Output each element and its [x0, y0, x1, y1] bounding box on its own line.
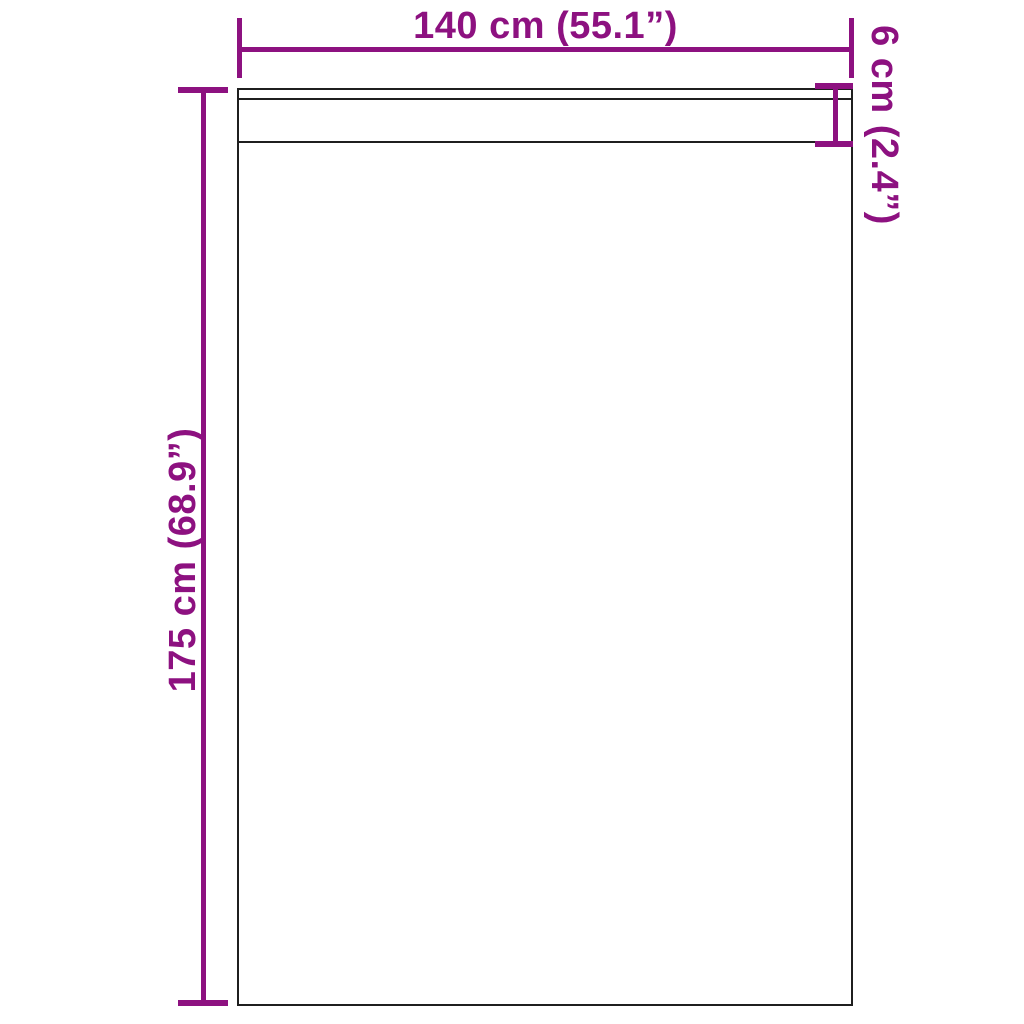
header-dimension-top-cap — [815, 83, 853, 89]
header-seam-line — [239, 98, 851, 100]
header-dimension-label: 6 cm (2.4”) — [865, 25, 903, 225]
header-dimension-bottom-cap — [815, 141, 853, 147]
height-dimension-label: 175 cm (68.9”) — [164, 428, 202, 693]
header-dimension-line — [833, 86, 838, 145]
height-dimension-top-cap — [178, 87, 228, 93]
height-dimension-bottom-cap — [178, 1000, 228, 1006]
dimension-diagram: 140 cm (55.1”) 175 cm (68.9”) 6 cm (2.4”… — [0, 0, 1024, 1024]
width-dimension-label: 140 cm (55.1”) — [240, 7, 851, 45]
width-dimension-line — [240, 47, 851, 52]
panel-outline — [237, 88, 853, 1006]
header-bottom-line — [239, 141, 851, 143]
